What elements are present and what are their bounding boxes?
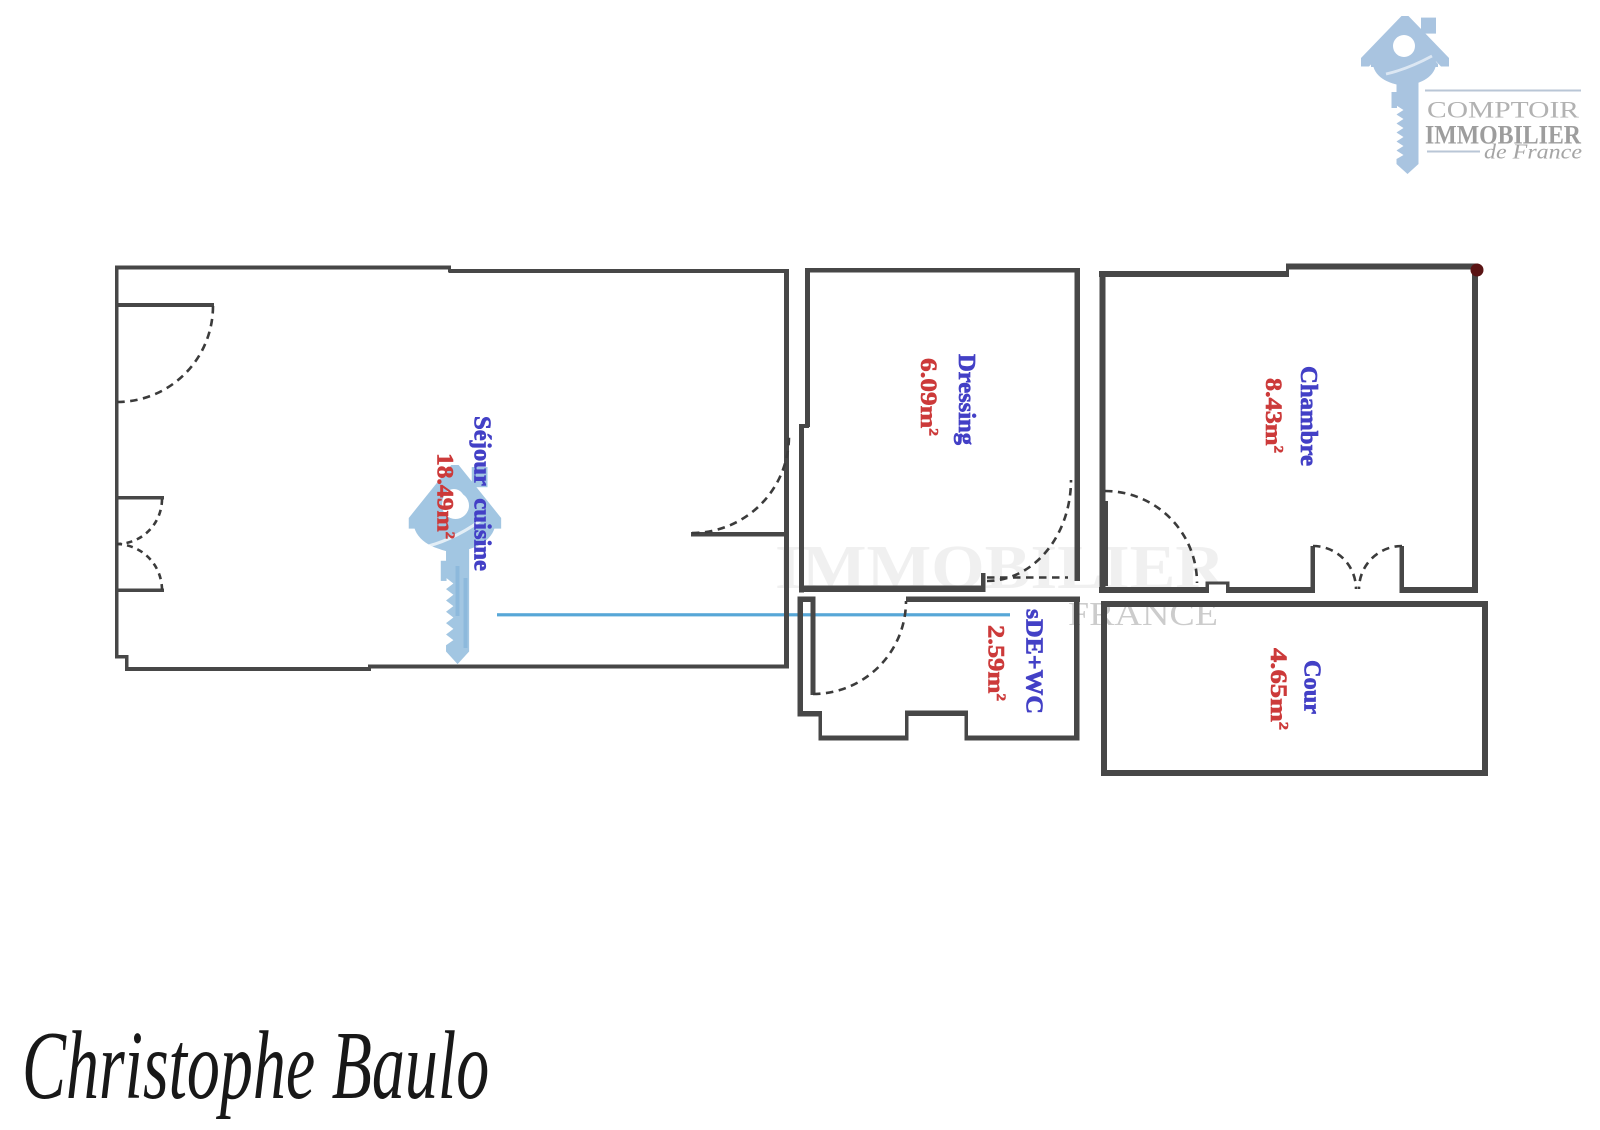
svg-text:Cour: Cour <box>1299 660 1325 714</box>
svg-text:Dressing: Dressing <box>953 354 979 445</box>
svg-text:18.49m2: 18.49m2 <box>433 453 459 539</box>
svg-text:COMPTOIR: COMPTOIR <box>1427 98 1580 123</box>
svg-text:Chambre: Chambre <box>1295 366 1321 466</box>
svg-text:4.65m2: 4.65m2 <box>1266 648 1292 730</box>
svg-text:6.09m2: 6.09m2 <box>916 358 942 436</box>
svg-text:8.43m2: 8.43m2 <box>1261 378 1287 453</box>
svg-text:de France: de France <box>1484 140 1582 164</box>
svg-text:sDE+WC: sDE+WC <box>1021 609 1047 714</box>
svg-text:2.59m2: 2.59m2 <box>984 625 1010 701</box>
svg-text:Christophe Baulo: Christophe Baulo <box>22 1011 489 1119</box>
svg-text:Séjour cuisine: Séjour cuisine <box>469 416 495 571</box>
